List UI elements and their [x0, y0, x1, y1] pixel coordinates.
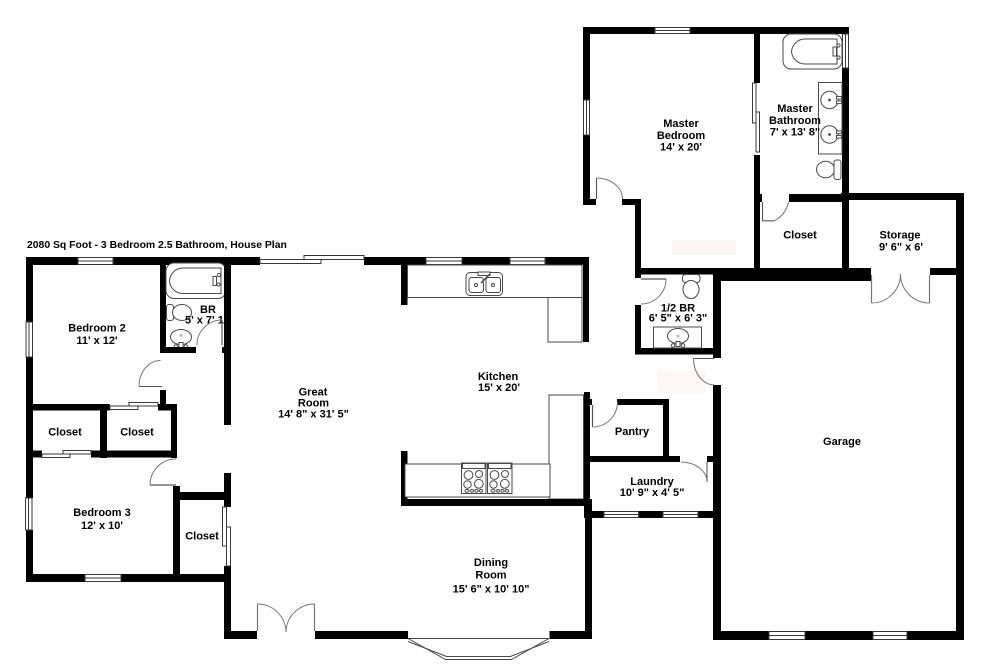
svg-text:Bedroom 2: Bedroom 2	[68, 323, 125, 335]
svg-text:Garage: Garage	[823, 436, 861, 448]
svg-text:14' x 20': 14' x 20'	[660, 142, 702, 154]
svg-text:Closet: Closet	[783, 230, 817, 242]
svg-text:Bathroom: Bathroom	[769, 115, 821, 127]
svg-text:Closet: Closet	[120, 427, 154, 439]
svg-text:Dining: Dining	[474, 557, 508, 569]
svg-text:11' x 12': 11' x 12'	[76, 335, 118, 347]
svg-text:Closet: Closet	[48, 427, 82, 439]
svg-text:15' 6" x 10' 10": 15' 6" x 10' 10"	[453, 584, 530, 596]
svg-text:Closet: Closet	[185, 531, 219, 543]
svg-text:Master: Master	[777, 103, 813, 115]
svg-text:10' 9" x 4' 5": 10' 9" x 4' 5"	[620, 487, 685, 499]
svg-text:6' 5" x 6' 3": 6' 5" x 6' 3"	[649, 313, 707, 325]
svg-text:9' 6" x 6': 9' 6" x 6'	[879, 242, 923, 254]
svg-text:2080 Sq Foot - 3 Bedroom 2.5 B: 2080 Sq Foot - 3 Bedroom 2.5 Bathroom, H…	[27, 240, 287, 251]
svg-text:14' 8" x 31' 5": 14' 8" x 31' 5"	[278, 409, 349, 421]
svg-text:Pantry: Pantry	[615, 426, 650, 438]
svg-text:Storage: Storage	[880, 230, 921, 242]
svg-text:Room: Room	[475, 570, 506, 582]
svg-text:Bedroom: Bedroom	[657, 130, 706, 142]
svg-text:12' x 10': 12' x 10'	[81, 520, 123, 532]
svg-text:Bedroom 3: Bedroom 3	[73, 507, 130, 519]
svg-text:7' x 13' 8": 7' x 13' 8"	[770, 127, 820, 139]
svg-text:Master: Master	[663, 118, 699, 130]
svg-text:15' x 20': 15' x 20'	[478, 382, 520, 394]
